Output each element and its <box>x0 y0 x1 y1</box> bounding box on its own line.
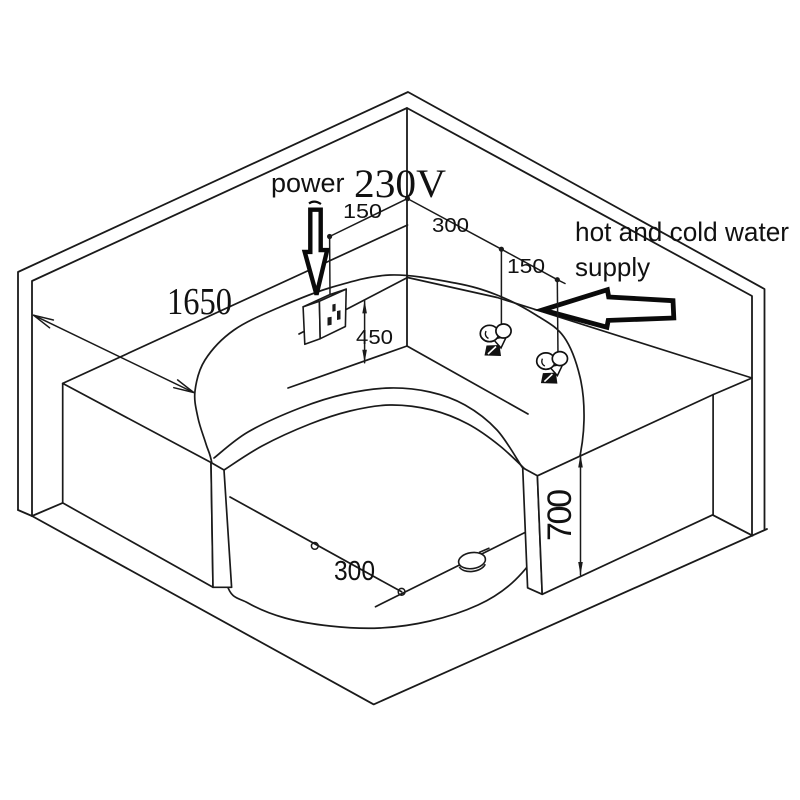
svg-text:supply: supply <box>575 252 650 282</box>
svg-text:700: 700 <box>541 489 579 541</box>
svg-text:300: 300 <box>432 214 469 237</box>
svg-text:150: 150 <box>343 200 382 223</box>
svg-text:150: 150 <box>507 255 545 278</box>
svg-text:300: 300 <box>334 555 375 586</box>
svg-text:450: 450 <box>356 326 393 349</box>
svg-text:hot and cold water: hot and cold water <box>575 217 789 247</box>
svg-text:1650: 1650 <box>167 281 232 323</box>
svg-text:power: power <box>271 168 345 198</box>
